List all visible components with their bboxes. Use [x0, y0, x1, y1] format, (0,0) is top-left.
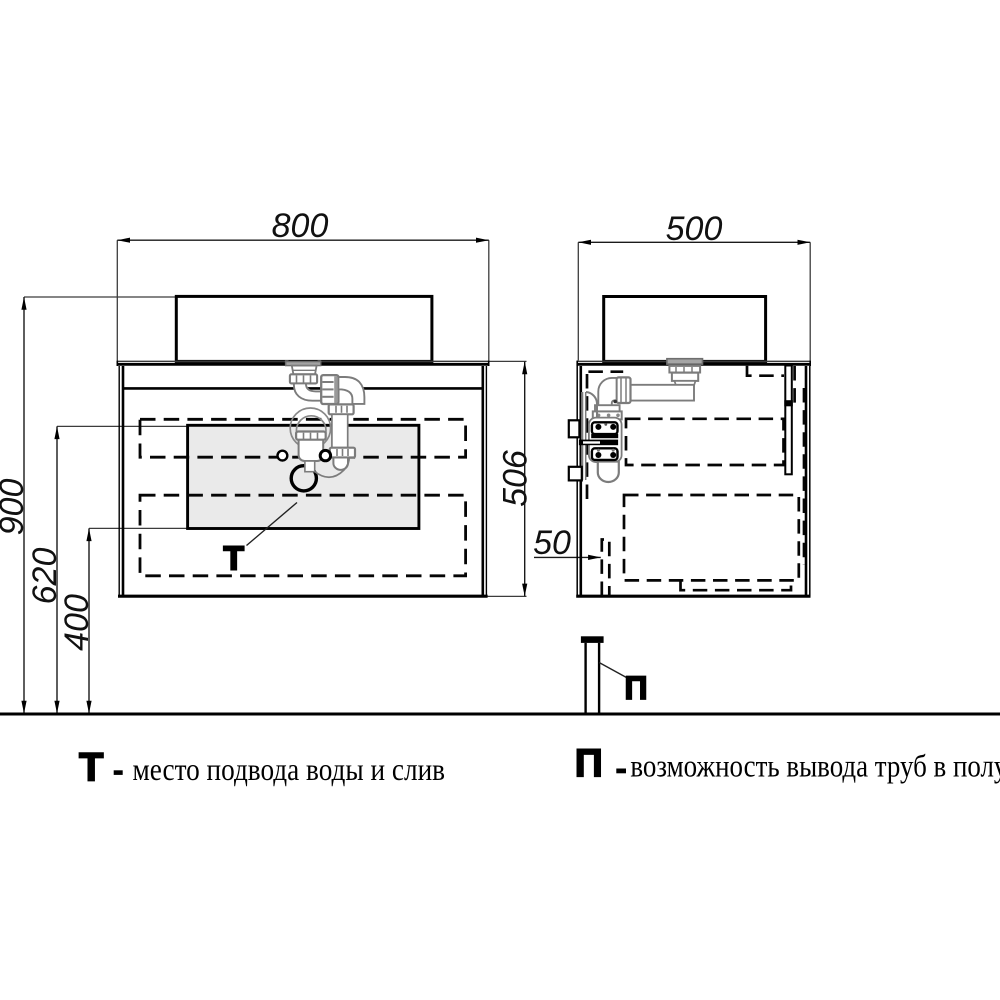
svg-text:П: П	[625, 670, 648, 706]
svg-text:500: 500	[666, 210, 723, 248]
svg-text:место подвода воды и слив: место подвода воды и слив	[133, 751, 446, 787]
svg-text:50: 50	[533, 524, 571, 562]
svg-text:400: 400	[58, 594, 96, 651]
svg-text:Т: Т	[79, 746, 103, 790]
svg-text:800: 800	[272, 207, 329, 245]
svg-text:возможность вывода труб в полу: возможность вывода труб в полу	[630, 748, 1000, 784]
svg-text:506: 506	[497, 450, 535, 507]
svg-text:П: П	[575, 742, 603, 785]
svg-text:Т: Т	[224, 541, 245, 578]
svg-text:900: 900	[0, 479, 31, 536]
